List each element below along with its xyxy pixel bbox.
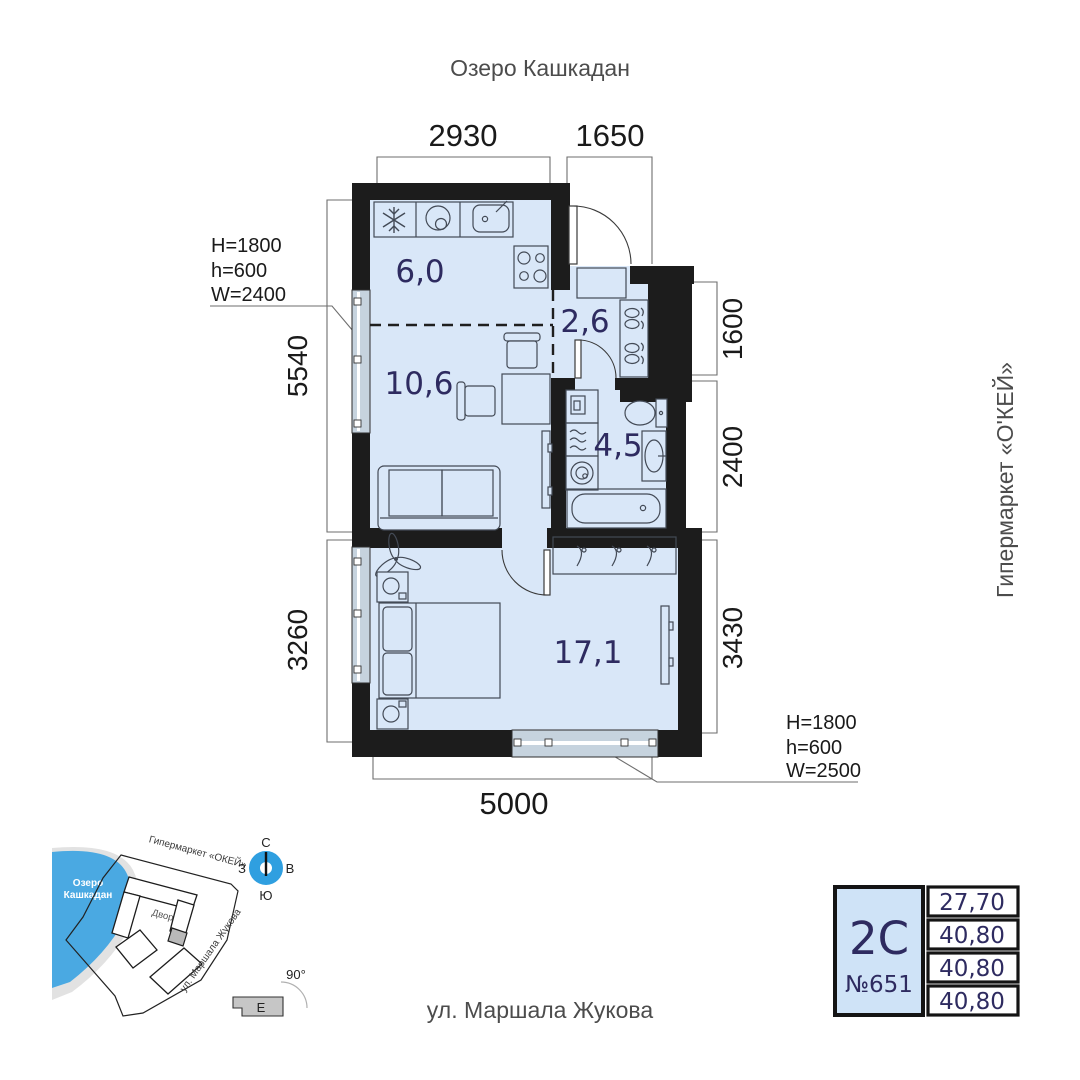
- bath-sink: [642, 431, 666, 481]
- annotation-left-h: H=1800: [211, 235, 282, 257]
- area-kitchen: 6,0: [395, 254, 444, 290]
- dining-table: [502, 374, 550, 424]
- compass-s: Ю: [259, 888, 272, 903]
- hypermarket-label: Гипермаркет «О'КЕЙ»: [991, 362, 1018, 598]
- chair-top: [504, 333, 540, 368]
- dim-left-3260: 3260: [282, 609, 313, 671]
- floorplan-canvas: Озеро Кашкадан Гипермаркет «О'КЕЙ» ул. М…: [0, 0, 1080, 1080]
- sofa: [378, 466, 500, 530]
- annotation-right-sill: h=600: [786, 737, 842, 759]
- apartment-number: №651: [845, 972, 913, 998]
- toilet: [625, 399, 667, 427]
- dim-left-5540: 5540: [282, 335, 313, 397]
- card-value-total: 40,80: [939, 923, 1005, 949]
- area-bedroom: 17,1: [553, 635, 622, 671]
- tv-living: [542, 431, 552, 508]
- dim-right-2400: 2400: [717, 426, 748, 488]
- courtyard-label: Двор: [151, 907, 175, 923]
- compass-n: С: [261, 835, 270, 850]
- angle-label: 90°: [286, 967, 306, 982]
- minimap-lake-label-2: Кашкадан: [64, 890, 113, 901]
- dim-top-2930: 2930: [429, 118, 498, 153]
- section-label: Е: [257, 1000, 266, 1015]
- card-value-full: 40,80: [939, 989, 1005, 1015]
- entrance-door: [569, 206, 631, 264]
- street-label: ул. Маршала Жукова: [427, 997, 654, 1023]
- dim-bottom-5000: 5000: [480, 786, 549, 821]
- floorplan-page: Озеро Кашкадан Гипермаркет «О'КЕЙ» ул. М…: [0, 0, 1080, 1080]
- window-annotation-left: H=1800 h=600 W=2400: [211, 235, 286, 306]
- minimap-hypermarket-label: Гипермаркет «ОКЕЙ»: [148, 832, 249, 871]
- card-value-area: 40,80: [939, 956, 1005, 982]
- annotation-left-w: W=2400: [211, 284, 286, 306]
- section-marker: Е 90°: [233, 967, 307, 1016]
- annotation-left-sill: h=600: [211, 260, 267, 282]
- dim-top-1650: 1650: [576, 118, 645, 153]
- window-annotation-right: H=1800 h=600 W=2500: [786, 712, 861, 782]
- annotation-right-w: W=2500: [786, 760, 861, 782]
- compass-w: З: [238, 861, 246, 876]
- lake-label: Озеро Кашкадан: [450, 55, 630, 81]
- compass: С Ю З В: [238, 835, 294, 903]
- card-value-living: 27,70: [939, 890, 1005, 916]
- dim-right-1600: 1600: [717, 298, 748, 360]
- area-bath: 4,5: [593, 428, 642, 464]
- window-living-left: [352, 290, 370, 433]
- site-minimap: Озеро Кашкадан Двор Гипермаркет «ОКЕЙ» у…: [52, 832, 249, 1016]
- apartment-type: 2С: [849, 912, 909, 965]
- stove-icon: [514, 246, 548, 288]
- chair-left: [457, 382, 495, 420]
- bed: [379, 603, 500, 698]
- annotation-right-h: H=1800: [786, 712, 857, 734]
- rotation-arc: [281, 982, 307, 1008]
- area-hall: 2,6: [560, 304, 609, 340]
- nightstand-top: [377, 572, 408, 602]
- dim-right-3430: 3430: [717, 607, 748, 669]
- window-bedroom-bottom: [512, 730, 658, 757]
- window-bedroom-left: [352, 547, 370, 683]
- compass-e: В: [286, 861, 295, 876]
- area-living: 10,6: [384, 366, 453, 402]
- apartment-info-card: 2С №651 27,70 40,80 40,80 40,80: [835, 887, 1018, 1015]
- nightstand-bottom: [377, 699, 408, 729]
